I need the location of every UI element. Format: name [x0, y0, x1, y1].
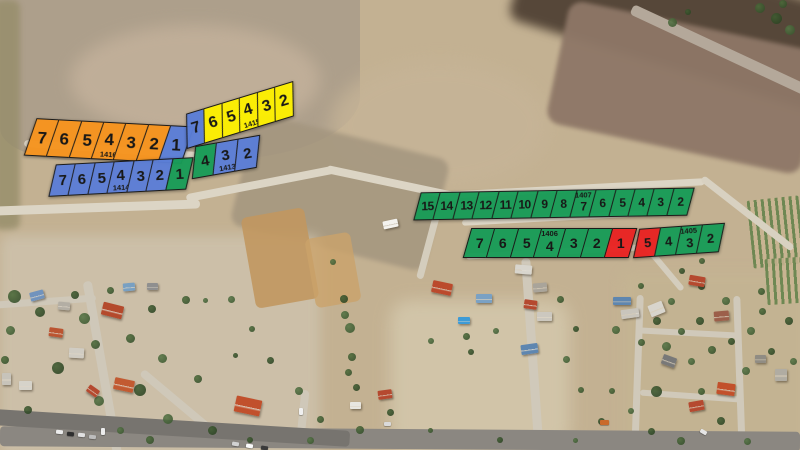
parcel-number: 7: [476, 236, 483, 250]
parcel-number: 3: [220, 147, 230, 163]
tree: [698, 388, 705, 395]
tree: [668, 18, 677, 27]
parcel-number: 13: [460, 199, 473, 211]
parcel-number: 3: [570, 236, 577, 250]
house: [476, 294, 492, 303]
parcel-number: 4: [242, 102, 255, 120]
parcel-number: 2: [156, 167, 165, 182]
tree: [628, 408, 634, 414]
tree: [612, 326, 620, 334]
car: [232, 442, 239, 447]
vineyard-rows: [764, 257, 800, 305]
tree: [563, 356, 570, 363]
tree: [747, 327, 755, 335]
tree: [728, 338, 735, 345]
parcel-number: 2: [593, 236, 600, 250]
house: [2, 373, 11, 385]
tree: [387, 409, 394, 416]
house: [377, 389, 392, 400]
car: [56, 430, 63, 435]
parcel-content: 1: [169, 158, 190, 189]
tree: [468, 349, 474, 355]
tree: [353, 384, 360, 391]
tree: [662, 342, 671, 351]
tree: [678, 328, 685, 335]
tree: [785, 317, 793, 325]
tree: [638, 339, 645, 346]
house: [48, 327, 63, 338]
parcel-number: 5: [523, 236, 530, 250]
tree: [668, 298, 675, 305]
tree: [688, 358, 695, 365]
tree: [317, 416, 324, 423]
parcel-1413-2: 2: [234, 135, 260, 172]
parcel-1415-2: 2: [274, 81, 294, 122]
parcel-content: 2: [699, 224, 722, 252]
tree: [203, 298, 208, 303]
block-1405: 54314052: [635, 223, 723, 258]
car: [67, 432, 74, 437]
house: [147, 283, 158, 290]
parcel-number: 11: [499, 199, 511, 211]
tree: [24, 406, 32, 414]
tree: [148, 305, 156, 313]
parcel-number: 7: [58, 172, 67, 187]
house: [19, 381, 32, 390]
house: [755, 355, 766, 363]
parcel-number: 1: [175, 166, 184, 181]
parcel-content: 2: [271, 84, 298, 120]
tree: [653, 317, 661, 325]
tree: [91, 340, 100, 349]
tree: [158, 354, 167, 363]
tree: [163, 414, 173, 424]
parcel-number: 2: [707, 232, 715, 245]
parcel-number: 3: [260, 98, 273, 116]
parcel-content: 2: [671, 189, 690, 215]
tree: [247, 437, 253, 443]
parcel-number: 5: [644, 236, 652, 249]
house: [714, 310, 730, 321]
tree: [330, 259, 336, 265]
parcel-number: 4: [104, 130, 114, 147]
tree: [463, 333, 470, 340]
tree: [345, 323, 355, 333]
tree: [146, 436, 154, 444]
tree: [71, 291, 79, 299]
tree: [182, 296, 190, 304]
tree: [744, 438, 751, 445]
block-1406: 76541406321: [467, 228, 633, 258]
parcel-number: 9: [541, 198, 547, 210]
parcel-number: 5: [619, 197, 625, 209]
tree: [696, 317, 704, 325]
tree: [758, 288, 765, 295]
car: [299, 408, 303, 415]
parcel-number: 5: [82, 131, 92, 148]
tree: [35, 307, 45, 317]
car: [89, 435, 96, 440]
parcel-number: 4: [665, 235, 673, 248]
tree: [699, 258, 705, 264]
aerial-parcel-map: 7654141632176541415327654141432143141321…: [0, 0, 800, 450]
parcel-1414-1: 1: [165, 157, 194, 191]
tree: [6, 326, 15, 335]
car: [261, 446, 268, 450]
car: [246, 444, 253, 449]
tree: [228, 296, 235, 303]
parcel-1406-1: 1: [604, 228, 638, 258]
house: [613, 297, 631, 305]
tree: [790, 358, 797, 365]
parcel-number: 6: [78, 171, 87, 186]
house: [350, 402, 361, 409]
tree: [717, 417, 725, 425]
terrain-patch: [390, 300, 570, 450]
house: [69, 348, 85, 359]
tree: [648, 428, 655, 435]
tree: [348, 353, 356, 361]
tree: [573, 438, 578, 443]
house: [515, 264, 533, 274]
house: [775, 369, 787, 381]
house: [123, 282, 136, 291]
car: [600, 420, 609, 425]
tree: [557, 296, 564, 303]
house: [716, 382, 735, 396]
parcel-1407-2: 2: [666, 188, 695, 217]
parcel-number: 7: [580, 200, 586, 212]
tree: [1, 356, 9, 364]
parcel-number: 6: [599, 197, 605, 209]
parcel-1405-2: 2: [696, 223, 725, 254]
tree: [771, 13, 782, 24]
parcel-number: 4: [200, 153, 210, 169]
tree: [779, 0, 787, 8]
parcel-number: 4: [546, 239, 553, 253]
parcel-content: 1: [609, 229, 632, 257]
tree: [638, 283, 644, 289]
tree: [345, 369, 352, 376]
parcel-number: 3: [686, 236, 694, 249]
tree: [295, 387, 303, 395]
tree: [341, 311, 349, 319]
parcel-number: 8: [560, 198, 566, 210]
tree: [8, 290, 21, 303]
tree: [493, 328, 499, 334]
parcel-number: 2: [242, 145, 252, 161]
parcel-number: 1: [171, 136, 181, 153]
tree: [307, 437, 314, 444]
tree: [428, 338, 434, 344]
tree: [685, 9, 691, 15]
parcel-number: 12: [480, 199, 493, 211]
tree: [742, 367, 750, 375]
tree: [677, 437, 685, 445]
tree: [755, 3, 765, 13]
parcel-number: 2: [677, 196, 683, 208]
parcel-number: 7: [37, 129, 47, 146]
parcel-number: 7: [190, 120, 203, 138]
tree: [497, 437, 503, 443]
tree: [267, 357, 274, 364]
parcel-number: 6: [499, 236, 506, 250]
tree: [79, 313, 90, 324]
parcel-number: 3: [136, 168, 145, 183]
house: [431, 280, 453, 296]
tree: [208, 426, 217, 435]
car: [78, 433, 85, 438]
tree: [722, 297, 730, 305]
parcel-number: 6: [59, 130, 69, 147]
parcel-number: 10: [519, 198, 532, 210]
house: [58, 301, 71, 310]
parcel-number: 2: [149, 135, 159, 152]
tree: [578, 387, 584, 393]
parcel-number: 4: [117, 167, 126, 182]
block-1407: 151413121110987140765432: [417, 188, 691, 221]
tree: [340, 295, 348, 303]
tree: [768, 348, 775, 355]
parcel-number: 15: [421, 200, 434, 212]
tree: [759, 308, 766, 315]
tree: [117, 427, 124, 434]
tree: [679, 268, 685, 274]
parcel-number: 1: [617, 236, 624, 250]
tree: [52, 362, 64, 374]
parcel-number: 6: [207, 114, 220, 132]
parcel-number: 4: [638, 196, 644, 208]
house: [458, 317, 470, 324]
parcel-content: 2: [234, 137, 260, 170]
house: [537, 312, 552, 321]
car: [384, 422, 391, 426]
parcel-number: 3: [126, 133, 136, 150]
tree: [134, 384, 146, 396]
tree: [609, 388, 615, 394]
tree: [785, 25, 795, 35]
tree: [708, 346, 716, 354]
parcel-number: 2: [278, 93, 291, 111]
car: [101, 428, 105, 435]
tree: [126, 334, 135, 343]
tree: [428, 428, 433, 433]
tree: [356, 426, 364, 434]
house: [533, 282, 548, 292]
tree: [573, 326, 579, 332]
house: [523, 299, 537, 310]
tree: [249, 326, 255, 332]
parcel-number: 3: [658, 196, 664, 208]
parcel-number: 14: [441, 200, 454, 212]
tree: [194, 375, 202, 383]
tree: [651, 386, 662, 397]
tree: [107, 287, 114, 294]
tree: [233, 353, 238, 358]
